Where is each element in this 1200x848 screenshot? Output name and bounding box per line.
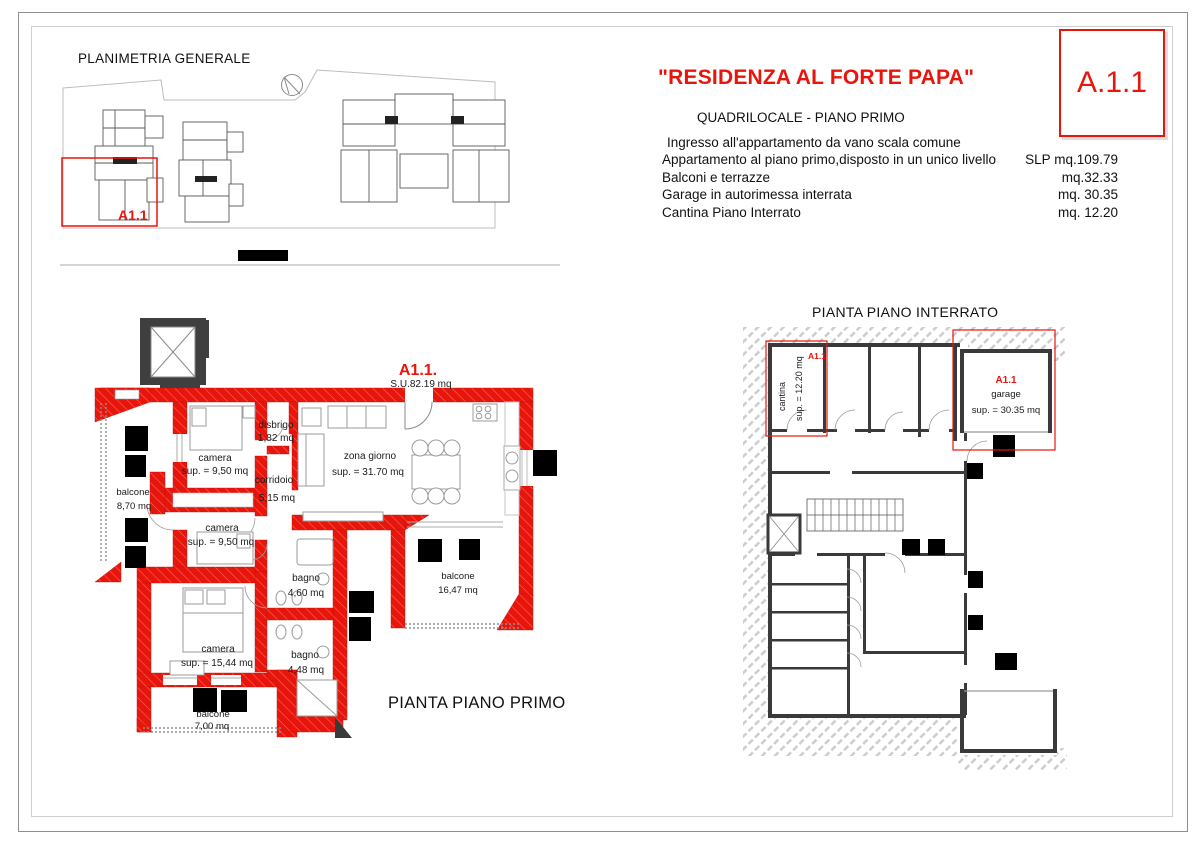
floorplan-sheet: { "header": { "title": "\"RESIDENZA AL F… <box>0 0 1200 848</box>
description-row: Cantina Piano Interrato mq. 12.20 <box>662 204 1118 221</box>
unit-code-badge: A.1.1 <box>1059 29 1165 137</box>
page-subtitle: QUADRILOCALE - PIANO PRIMO <box>697 110 905 125</box>
cantina-unit-label: A1.1 <box>808 351 826 361</box>
room-area-balcone-sud: 7,00 mq <box>195 721 229 732</box>
room-name-zona-giorno: zona giorno <box>344 451 397 462</box>
building-cluster-1 <box>95 110 163 220</box>
page-title: "RESIDENZA AL FORTE PAPA" <box>658 66 974 90</box>
unit-label: A1.1. <box>399 362 437 379</box>
stairs <box>807 499 903 531</box>
room-area-camera1: sup. = 9,50 mq <box>182 466 248 477</box>
room-name-balcone-ovest: balcone <box>116 487 149 498</box>
room-name-camera3: camera <box>201 644 235 655</box>
unit-area: S.U.82.19 mq <box>390 379 451 390</box>
scale-bar <box>238 250 288 261</box>
room-name-bagno2: bagno <box>291 650 319 661</box>
description-value: SLP mq.109.79 <box>1025 151 1118 168</box>
room-area-disbrigo: 1,82 mq <box>258 433 294 444</box>
garage-unit-label: A1.1 <box>995 375 1017 386</box>
room-name-corridoio: corridoio <box>255 475 294 486</box>
description-text: Appartamento al piano primo,disposto in … <box>662 151 996 168</box>
cantina-area-label: sup. = 12.20 mq <box>794 356 804 421</box>
basement-plan-drawing: A1.1 cantina sup. = 12.20 mq A1.1 garage… <box>735 323 1075 775</box>
description-row: Appartamento al piano primo,disposto in … <box>662 151 1118 168</box>
room-area-balcone-est: 16,47 mq <box>438 585 478 596</box>
room-name-bagno1: bagno <box>292 573 320 584</box>
room-name-camera2: camera <box>205 523 239 534</box>
room-area-camera2: sup. = 9,50 mq <box>188 537 254 548</box>
site-unit-label: A1.1 <box>118 207 148 223</box>
description-text: Balconi e terrazze <box>662 169 770 186</box>
room-area-bagno1: 4,60 mq <box>288 588 324 599</box>
cantina-name-label: cantina <box>777 382 787 411</box>
garage-name-label: garage <box>991 389 1021 400</box>
room-area-camera3: sup. = 15,44 mq <box>181 658 253 669</box>
description-value: mq. 30.35 <box>1058 186 1118 203</box>
description-row: Balconi e terrazze mq.32.33 <box>662 169 1118 186</box>
room-area-zona-giorno: sup. = 31.70 mq <box>332 467 404 478</box>
building-cluster-3 <box>341 94 509 202</box>
description-text: Garage in autorimessa interrata <box>662 186 852 203</box>
room-name-balcone-sud: balcone <box>196 709 229 720</box>
room-area-corridoio: 5,15 mq <box>259 493 295 504</box>
entrance-door <box>405 388 433 429</box>
first-floor-plan-drawing: A1.1. S.U.82.19 mq camera sup. = 9,50 mq… <box>85 298 585 750</box>
room-name-camera1: camera <box>198 453 232 464</box>
basement-plan-title: PIANTA PIANO INTERRATO <box>812 304 998 320</box>
room-area-balcone-ovest: 8,70 mq <box>117 501 151 512</box>
description-row: Garage in autorimessa interrata mq. 30.3… <box>662 186 1118 203</box>
description-row: Ingresso all'appartamento da vano scala … <box>662 134 1118 151</box>
description-text: Ingresso all'appartamento da vano scala … <box>662 134 961 151</box>
garage-area-label: sup. = 30.35 mq <box>972 405 1040 416</box>
building-cluster-2 <box>179 122 243 222</box>
north-arrow-icon <box>282 75 303 96</box>
description-value: mq.32.33 <box>1062 169 1118 186</box>
description-block: Ingresso all'appartamento da vano scala … <box>662 134 1118 221</box>
room-area-bagno2: 4,48 mq <box>288 665 324 676</box>
room-name-disbrigo: disbrigo <box>258 420 293 431</box>
description-text: Cantina Piano Interrato <box>662 204 801 221</box>
basement-elevator <box>768 515 800 553</box>
description-value: mq. 12.20 <box>1058 204 1118 221</box>
room-name-balcone-est: balcone <box>441 571 474 582</box>
elevator-core <box>140 318 209 393</box>
site-plan-drawing: A1.1 <box>55 58 565 272</box>
